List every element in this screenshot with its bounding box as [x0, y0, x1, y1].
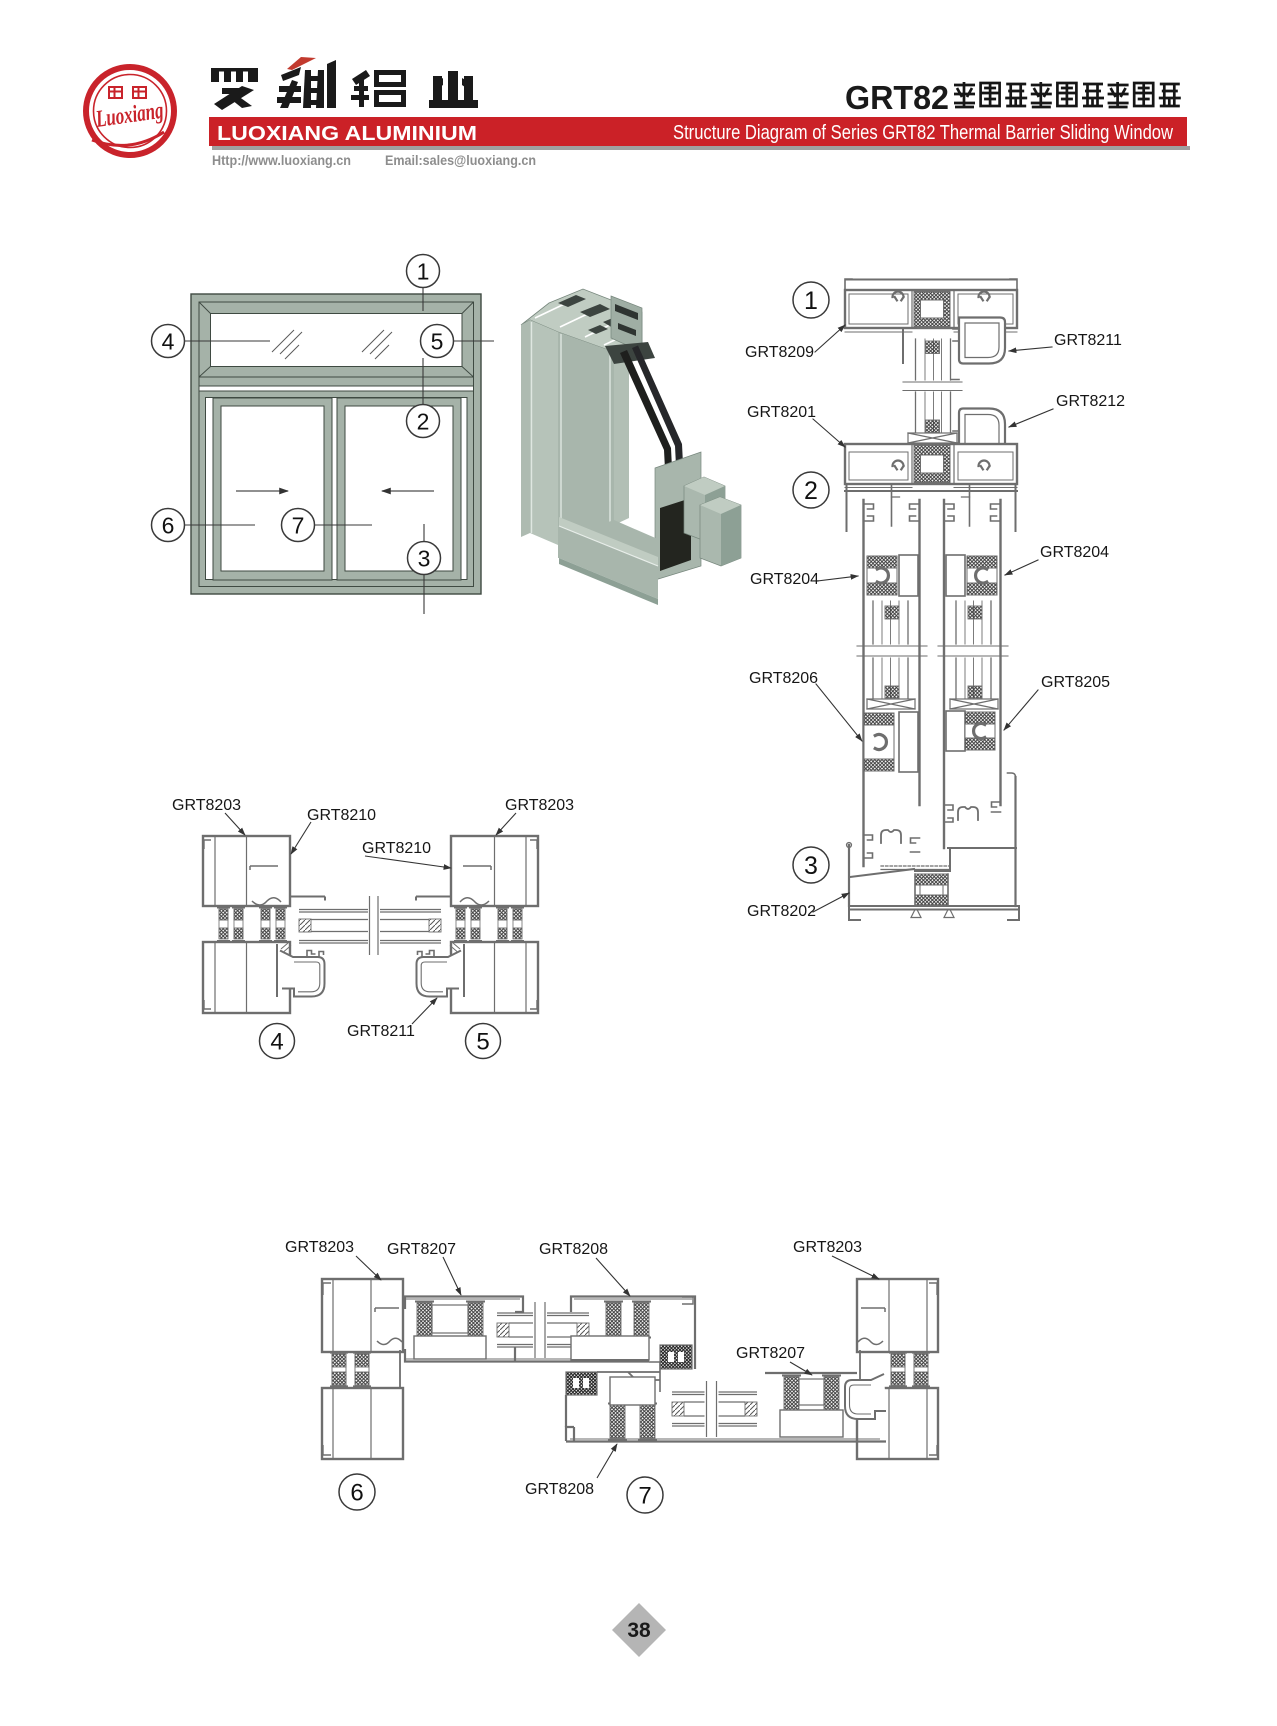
svg-text:GRT8210: GRT8210 [362, 840, 431, 857]
svg-text:4: 4 [162, 328, 175, 354]
svg-text:GRT8203: GRT8203 [505, 797, 574, 814]
svg-text:GRT8210: GRT8210 [307, 807, 376, 824]
svg-text:2: 2 [417, 408, 430, 434]
svg-text:GRT8211: GRT8211 [347, 1023, 415, 1040]
svg-text:GRT8205: GRT8205 [1041, 674, 1110, 691]
svg-text:4: 4 [270, 1029, 283, 1056]
svg-text:GRT8203: GRT8203 [285, 1239, 354, 1256]
svg-text:Http://www.luoxiang.cn: Http://www.luoxiang.cn [212, 152, 351, 168]
svg-text:GRT8209: GRT8209 [745, 344, 814, 361]
svg-text:GRT8202: GRT8202 [747, 903, 816, 920]
svg-text:Email:sales@luoxiang.cn: Email:sales@luoxiang.cn [385, 152, 536, 168]
svg-text:6: 6 [162, 512, 175, 538]
svg-text:1: 1 [417, 258, 430, 284]
svg-text:3: 3 [804, 852, 818, 880]
svg-text:GRT82: GRT82 [845, 79, 949, 116]
svg-text:7: 7 [638, 1483, 651, 1510]
svg-text:GRT8201: GRT8201 [747, 404, 816, 421]
svg-text:5: 5 [476, 1029, 489, 1056]
svg-text:6: 6 [350, 1480, 363, 1507]
svg-text:GRT8206: GRT8206 [749, 670, 818, 687]
svg-text:GRT8208: GRT8208 [539, 1241, 608, 1258]
svg-text:GRT8204: GRT8204 [1040, 544, 1109, 561]
svg-text:Structure Diagram of Series GR: Structure Diagram of Series GRT82 Therma… [673, 122, 1173, 144]
svg-text:GRT8212: GRT8212 [1056, 393, 1125, 410]
svg-text:GRT8203: GRT8203 [172, 797, 241, 814]
svg-text:GRT8211: GRT8211 [1054, 332, 1122, 349]
svg-text:5: 5 [431, 328, 444, 354]
svg-text:2: 2 [804, 477, 818, 505]
svg-text:GRT8204: GRT8204 [750, 571, 819, 588]
svg-text:GRT8207: GRT8207 [736, 1345, 805, 1362]
svg-text:GRT8207: GRT8207 [387, 1241, 456, 1258]
svg-text:GRT8203: GRT8203 [793, 1239, 862, 1256]
svg-text:7: 7 [292, 512, 305, 538]
svg-text:38: 38 [627, 1619, 651, 1642]
svg-text:1: 1 [804, 287, 818, 315]
svg-text:LUOXIANG ALUMINIUM: LUOXIANG ALUMINIUM [217, 123, 477, 145]
svg-text:3: 3 [418, 545, 431, 571]
svg-text:GRT8208: GRT8208 [525, 1481, 594, 1498]
